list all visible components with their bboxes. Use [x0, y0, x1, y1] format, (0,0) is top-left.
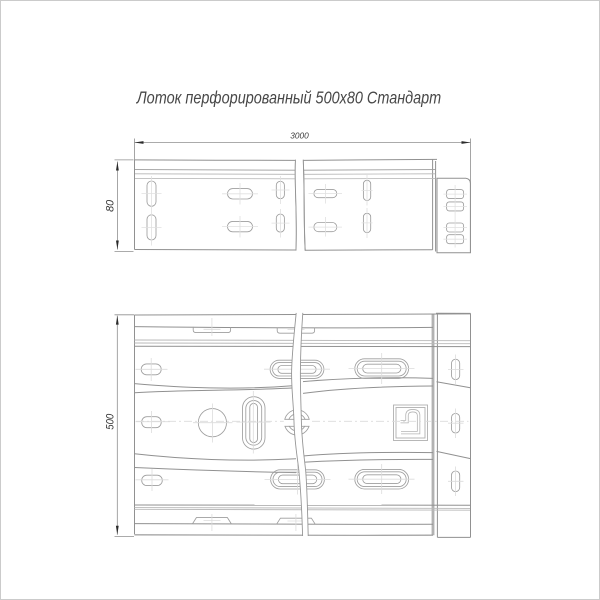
svg-text:500: 500 — [105, 414, 117, 430]
svg-text:80: 80 — [105, 200, 117, 212]
svg-text:Лоток перфорированный 500х80 С: Лоток перфорированный 500х80 Стандарт — [136, 89, 441, 107]
svg-text:3000: 3000 — [290, 130, 309, 140]
